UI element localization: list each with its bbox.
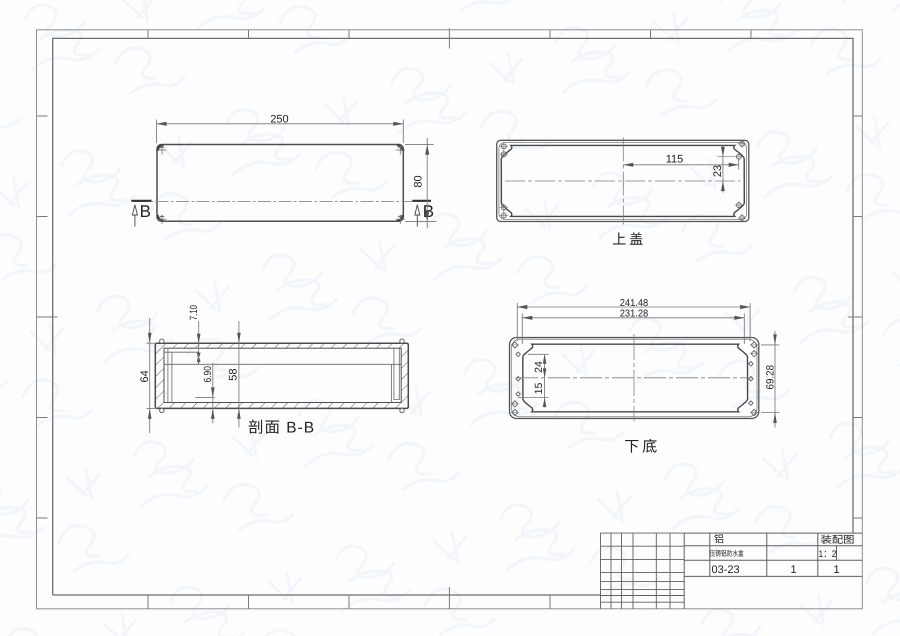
- svg-text:1: 1: [790, 564, 796, 576]
- svg-text:23: 23: [712, 165, 724, 177]
- svg-text:58: 58: [228, 368, 240, 380]
- svg-text:241.48: 241.48: [620, 298, 649, 309]
- svg-text:115: 115: [666, 153, 684, 165]
- svg-text:03-23: 03-23: [712, 564, 740, 576]
- svg-text:1: 1: [833, 564, 839, 576]
- svg-text:80: 80: [413, 175, 425, 187]
- svg-text:铝: 铝: [714, 534, 724, 546]
- svg-text:7.10: 7.10: [188, 305, 200, 320]
- svg-text:装配图: 装配图: [821, 534, 855, 546]
- svg-text:231.28: 231.28: [620, 309, 649, 320]
- svg-text:15: 15: [533, 383, 545, 395]
- svg-text:压铸铝防水盒: 压铸铝防水盒: [710, 549, 744, 558]
- svg-text:64: 64: [139, 370, 151, 382]
- svg-text:69.28: 69.28: [765, 365, 777, 390]
- svg-text:24: 24: [533, 361, 545, 373]
- svg-text:剖面 B-B: 剖面 B-B: [248, 418, 315, 436]
- svg-text:6.90: 6.90: [202, 366, 214, 383]
- svg-text:B: B: [140, 202, 151, 221]
- svg-text:250: 250: [270, 113, 288, 125]
- svg-text:下底: 下底: [624, 439, 660, 456]
- svg-text:1：2: 1：2: [819, 549, 837, 560]
- svg-text:上盖: 上盖: [612, 231, 646, 247]
